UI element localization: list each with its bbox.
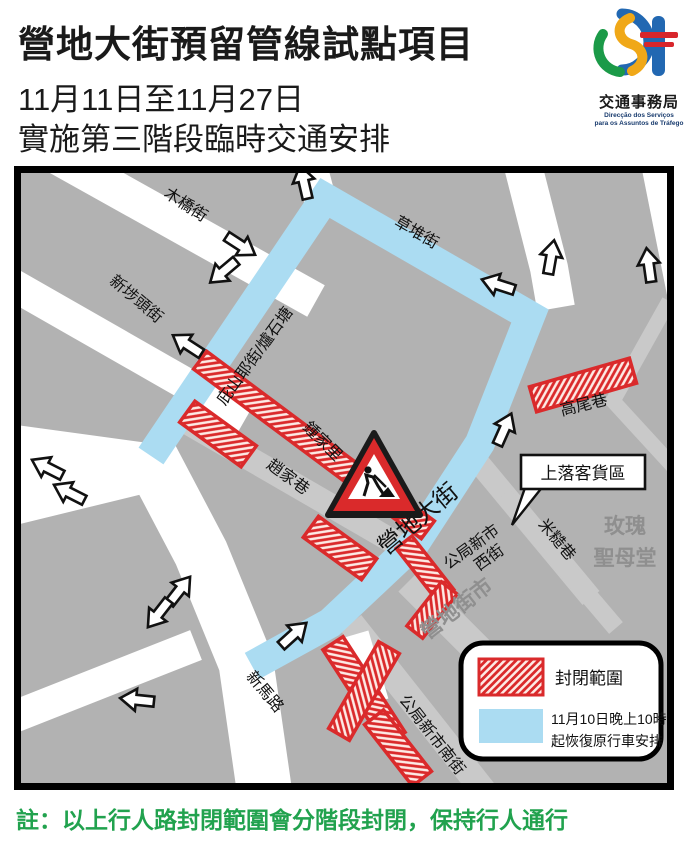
- loading-zone-label: 上落客貨區: [541, 464, 626, 483]
- legend-restore-line2: 起恢復原行車安排: [551, 733, 663, 749]
- legend-blue-swatch: [479, 709, 543, 743]
- place-label: 玫瑰: [604, 514, 646, 538]
- legend-restore-line1: 11月10日晚上10時: [551, 711, 667, 727]
- legend-closed-label: 封閉範圍: [555, 669, 623, 688]
- page-title: 營地大街預留管線試點項目: [18, 14, 474, 68]
- traffic-map: 木橋街 新埗頭街 庇山耶街/爐石塘 草堆街 鍾家里 趙家巷 高尾巷 營地大街 公…: [14, 166, 674, 790]
- logo-bureau-name: 交通事務局: [592, 91, 686, 112]
- logo-bureau-name-pt-2: para os Assuntos de Tráfego: [592, 120, 686, 128]
- traffic-notice-poster: { "colors": { "route_blue": "#abdcf2", "…: [0, 0, 688, 852]
- place-label: 聖母堂: [594, 546, 657, 570]
- map-legend: 封閉範圍 11月10日晚上10時 起恢復原行車安排: [461, 643, 667, 759]
- legend-closed-swatch: [479, 659, 543, 695]
- dsat-logo: 交通事務局 Direcção dos Serviços para os Assu…: [592, 6, 686, 128]
- logo-bureau-name-pt-1: Direcção dos Serviços: [592, 112, 686, 120]
- footer-note: 註：以上行人路封閉範圍會分階段封閉，保持行人通行: [16, 801, 568, 835]
- subtitle: 實施第三階段臨時交通安排: [18, 114, 390, 159]
- dsat-logo-icon: [592, 6, 686, 86]
- date-range: 11月11日至11月27日: [18, 74, 304, 119]
- map-canvas: 木橋街 新埗頭街 庇山耶街/爐石塘 草堆街 鍾家里 趙家巷 高尾巷 營地大街 公…: [21, 173, 667, 783]
